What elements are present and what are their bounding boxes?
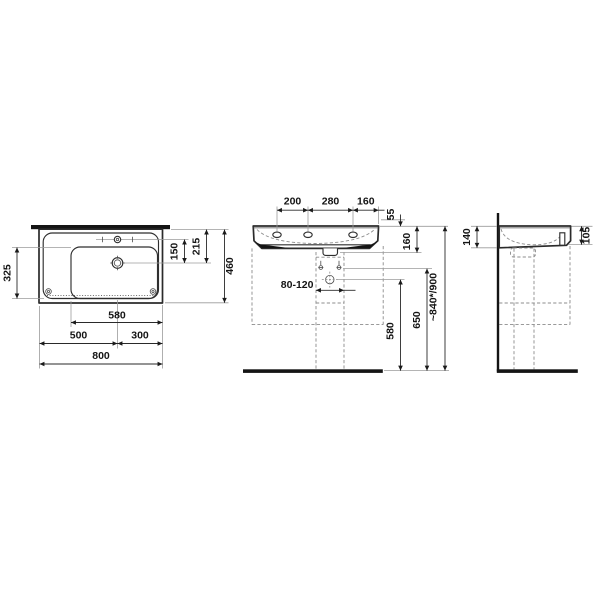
front-floor-line — [243, 369, 383, 373]
dim-label-plan-bowl-depth: 325 — [2, 264, 14, 282]
side-overflow-box — [560, 233, 565, 245]
fixing-screw-right — [337, 261, 342, 270]
dim-label-plan-right-split: 300 — [131, 330, 149, 342]
dim-label-front-span-right: 160 — [357, 196, 375, 208]
taphole-right — [349, 232, 357, 237]
side-view: 140 105 — [461, 213, 593, 373]
plan-view: 325 150 215 460 580 500 300 800 — [2, 225, 237, 369]
drain-outlet — [323, 248, 338, 255]
dim-label-front-span-mid: 280 — [322, 196, 340, 208]
washbasin-dimension-drawing: 325 150 215 460 580 500 300 800 — [0, 0, 600, 600]
dim-label-plan-bowl-width: 580 — [108, 310, 126, 322]
fixing-screw-left — [318, 261, 323, 270]
dim-label-plan-tap-to-drain: 150 — [169, 243, 181, 261]
dim-label-front-fixing-height: 650 — [411, 311, 423, 329]
dim-label-plan-depth: 460 — [224, 257, 236, 275]
dim-label-side-front-height: 105 — [581, 227, 593, 245]
drain-fitting-symbol — [322, 272, 338, 288]
side-floor-line — [497, 369, 578, 373]
dim-label-side-back-height: 140 — [461, 228, 473, 246]
dim-label-front-install-height: ~840*/900 — [428, 273, 440, 321]
dim-label-plan-left-split: 500 — [70, 330, 88, 342]
drain — [112, 258, 123, 269]
dim-label-front-drain-height: 580 — [385, 322, 397, 340]
dim-label-front-span-left: 200 — [284, 196, 302, 208]
plan-outer-outline — [39, 229, 163, 303]
dim-label-plan-edge-to-drain: 215 — [191, 238, 203, 256]
dim-label-front-body-height: 160 — [401, 233, 413, 251]
taphole — [114, 236, 120, 242]
dim-label-plan-total-width: 800 — [92, 350, 110, 362]
taphole-center — [304, 232, 312, 237]
taphole-left — [273, 232, 281, 237]
dim-label-front-pipe-range: 80-120 — [281, 279, 314, 291]
dim-label-front-rim-offset: 55 — [385, 209, 397, 221]
front-view: 200 280 160 55 160 80-120 580 650 ~840*/… — [243, 196, 449, 373]
